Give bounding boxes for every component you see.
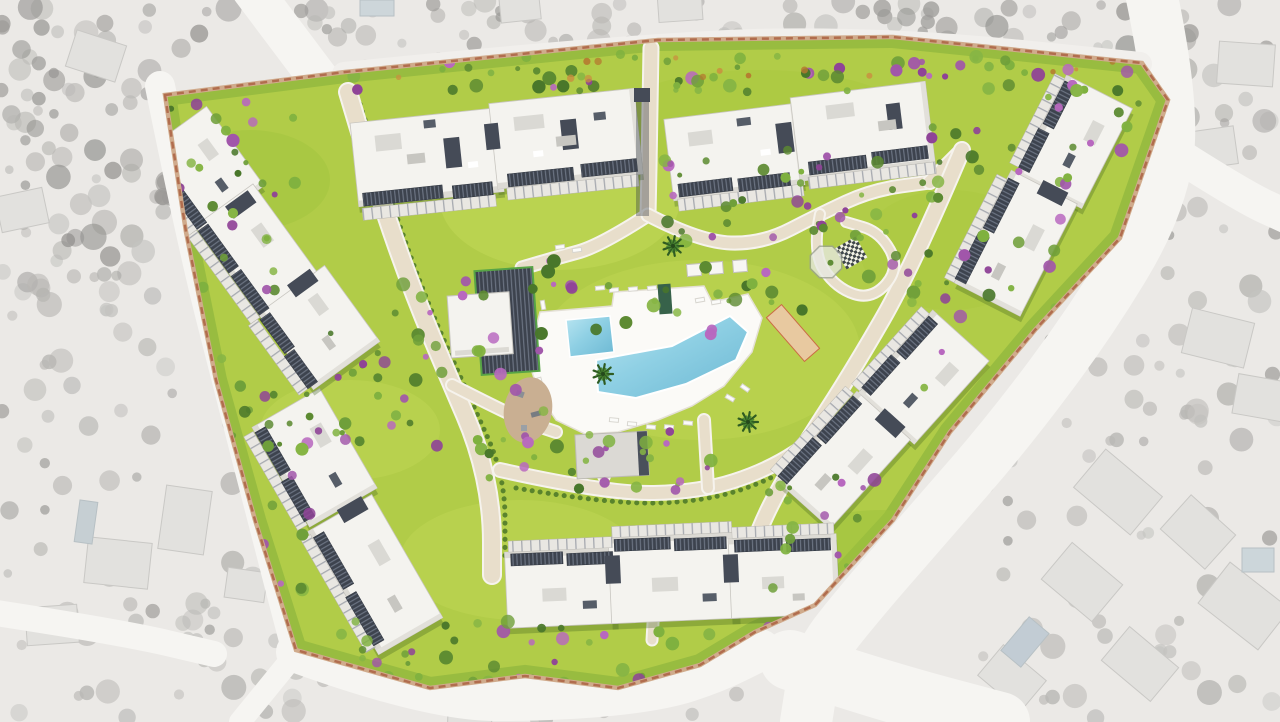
gray-tree-dark: [61, 233, 75, 247]
shrub: [667, 161, 673, 167]
shrub: [359, 655, 366, 662]
sun-lounger: [609, 418, 618, 423]
shrub: [985, 266, 992, 273]
shrub: [783, 146, 792, 155]
shrub: [785, 534, 795, 544]
shrub: [431, 341, 441, 351]
shrub: [919, 59, 925, 65]
shrub: [473, 619, 482, 628]
gray-tree-dark: [143, 3, 156, 16]
shrub: [470, 79, 484, 93]
shrub: [678, 228, 685, 235]
shrub: [939, 349, 945, 355]
shrub: [844, 87, 851, 94]
gray-tree: [1238, 92, 1253, 107]
gray-tree: [40, 360, 50, 370]
gray-tree: [1017, 510, 1036, 529]
gray-tree-dark: [985, 15, 1008, 38]
shrub: [1008, 285, 1014, 291]
shrub: [537, 624, 546, 633]
shrub: [1121, 66, 1133, 78]
gray-tree: [7, 311, 17, 321]
gray-tree: [74, 691, 84, 701]
gray-tree: [1174, 616, 1184, 626]
shrub: [924, 249, 933, 258]
shrub: [400, 394, 409, 403]
shrub: [1043, 260, 1056, 273]
sun-lounger: [572, 247, 581, 252]
shrub: [774, 53, 781, 60]
stair-tower: [443, 137, 462, 169]
shrub: [912, 213, 918, 219]
shrub: [1045, 94, 1052, 101]
shrub: [531, 454, 537, 460]
gray-tree: [1097, 628, 1113, 644]
shrub: [619, 316, 632, 329]
gray-tree: [27, 274, 49, 296]
shrub: [1062, 64, 1073, 75]
shrub: [889, 186, 896, 193]
shrub: [557, 80, 569, 92]
shrub: [797, 179, 804, 186]
shrub: [1112, 85, 1123, 96]
shrub: [870, 208, 882, 220]
gray-tree: [1176, 369, 1185, 378]
gray-tree: [48, 213, 69, 234]
shrub: [416, 291, 427, 302]
palm-trunk: [746, 420, 750, 424]
gray-tree-dark: [27, 120, 44, 137]
shrub: [409, 373, 423, 387]
shrub: [944, 280, 949, 285]
shrub: [439, 66, 445, 72]
gray-tree: [1105, 436, 1115, 446]
gray-tree-dark: [96, 15, 113, 32]
gray-tree: [33, 106, 43, 116]
gray-tree: [92, 174, 101, 183]
shrub: [600, 631, 609, 640]
shrub: [387, 421, 396, 430]
shrub: [669, 192, 677, 200]
shrub: [798, 169, 804, 175]
shrub: [488, 70, 495, 77]
roof-unit: [736, 117, 751, 127]
gray-tree-dark: [1001, 0, 1018, 17]
shrub: [695, 86, 703, 94]
shrub: [1000, 55, 1010, 65]
shrub: [1003, 79, 1015, 91]
shrub: [303, 508, 315, 520]
gray-tree: [1197, 680, 1222, 705]
gray-tree: [1143, 527, 1155, 539]
shrub: [1013, 237, 1025, 249]
shrub: [954, 310, 967, 323]
gray-tree: [6, 115, 21, 130]
shrub: [461, 276, 471, 286]
gray-tree: [17, 437, 32, 452]
shrub: [977, 230, 989, 242]
gray-tree: [99, 281, 120, 302]
shrub: [359, 360, 367, 368]
gray-tree: [132, 472, 141, 481]
gray-tree-dark: [32, 56, 46, 70]
shrub: [270, 391, 278, 399]
shrub: [661, 216, 674, 229]
shrub: [1115, 143, 1129, 157]
shrub: [671, 485, 681, 495]
gray-tree: [4, 569, 13, 578]
gray-tree: [10, 704, 27, 721]
shrub: [1122, 121, 1133, 132]
shrub: [339, 417, 351, 429]
shrub: [955, 60, 965, 70]
shrub: [336, 629, 347, 640]
gray-tree: [144, 287, 161, 304]
sun-lounger: [711, 299, 721, 305]
roof-unit: [375, 133, 403, 152]
gray-tree: [1082, 449, 1096, 463]
gray-tree: [120, 148, 143, 171]
shrub: [349, 369, 357, 377]
shrub: [268, 501, 278, 511]
gray-tree: [1062, 418, 1072, 428]
shrub: [1135, 100, 1141, 106]
shrub: [590, 324, 602, 336]
shrub: [472, 345, 483, 356]
shrub: [533, 67, 540, 74]
shrub: [551, 282, 556, 287]
shrub: [248, 117, 258, 127]
shrub: [263, 440, 274, 451]
roof-pergola: [614, 537, 670, 551]
shrub: [423, 354, 429, 360]
shrub: [819, 224, 828, 233]
shrub: [458, 291, 468, 301]
gray-tree: [1003, 496, 1013, 506]
shrub: [818, 70, 830, 82]
shrub: [464, 64, 472, 72]
accent-shrub: [594, 58, 601, 65]
gray-tree: [131, 240, 155, 264]
gray-tree-dark: [46, 165, 71, 190]
gray-tree: [205, 625, 215, 635]
shrub: [332, 429, 340, 437]
shrub: [532, 80, 545, 93]
gray-tree-dark: [873, 0, 891, 17]
accent-shrub: [1074, 67, 1078, 71]
shrub: [734, 53, 746, 65]
gray-tree: [729, 687, 744, 702]
shrub: [485, 449, 494, 458]
shrub: [262, 285, 271, 294]
gray-tree-dark: [34, 20, 50, 36]
garden-pavilion: [810, 246, 841, 277]
shrub: [265, 420, 274, 429]
gray-tree: [591, 3, 612, 24]
shrub: [269, 267, 277, 275]
gray-tree-dark: [1055, 26, 1068, 39]
shrub: [228, 208, 238, 218]
shrub: [277, 442, 282, 447]
shrub: [780, 543, 791, 554]
gray-tree: [141, 426, 160, 445]
gray-tree: [1125, 390, 1144, 409]
gray-tree: [996, 567, 1010, 581]
roof-unit: [407, 153, 426, 165]
shrub: [735, 64, 741, 70]
shrub: [413, 335, 424, 346]
shrub: [982, 82, 995, 95]
shrub: [942, 73, 948, 79]
shrub: [550, 84, 557, 91]
shrub: [372, 658, 382, 668]
roof-unit: [652, 577, 679, 592]
shrub: [243, 160, 248, 165]
shrub: [743, 88, 752, 97]
shrub: [315, 427, 322, 434]
playground-equipment: [521, 425, 527, 431]
gray-tree: [156, 358, 175, 377]
gray-tree: [1155, 624, 1176, 645]
shade-cabana: [733, 259, 748, 272]
shrub: [289, 177, 301, 189]
gray-tree: [51, 25, 64, 38]
shrub: [328, 331, 334, 337]
shrub: [769, 233, 777, 241]
shrub: [519, 462, 529, 472]
gray-tree: [114, 404, 128, 418]
palm-trunk: [671, 244, 675, 248]
shrub: [676, 477, 684, 485]
shrub: [664, 58, 672, 66]
accent-shrub: [746, 73, 752, 79]
shrub: [937, 159, 943, 165]
shrub: [296, 443, 309, 456]
gray-tree: [1198, 460, 1213, 475]
sun-lounger: [695, 297, 705, 303]
shrub: [713, 289, 722, 298]
shrub: [838, 479, 846, 487]
gray-tree: [138, 338, 156, 356]
shrub: [933, 193, 943, 203]
shade-cabana: [687, 263, 702, 276]
shrub: [1031, 68, 1045, 82]
accent-shrub: [801, 67, 808, 74]
shrub: [242, 98, 251, 107]
gray-tree: [202, 7, 212, 17]
gray-tree: [97, 267, 112, 282]
shrub: [195, 164, 203, 172]
shrub: [375, 350, 381, 356]
shrub: [940, 293, 950, 303]
shrub: [510, 384, 522, 396]
shrub: [583, 458, 589, 464]
shrub: [907, 298, 917, 308]
roof-unit: [760, 149, 771, 156]
gray-tree: [224, 628, 243, 647]
shrub: [539, 406, 549, 416]
shrub: [442, 622, 450, 630]
gray-tree: [26, 152, 45, 171]
gray-tree: [167, 389, 177, 399]
gray-tree: [42, 410, 55, 423]
shrub: [191, 99, 203, 111]
gray-tree: [1136, 334, 1150, 348]
sun-lounger: [627, 422, 636, 427]
shrub: [646, 454, 654, 462]
shrub: [221, 126, 231, 136]
shrub: [306, 413, 314, 421]
gray-tree: [1182, 661, 1201, 680]
roof-unit: [556, 135, 577, 147]
roof-pergola: [674, 537, 726, 551]
shrub: [566, 282, 578, 294]
gray-tree: [686, 708, 699, 721]
shrub: [1048, 245, 1060, 257]
shrub: [666, 637, 680, 651]
shrub: [407, 420, 414, 427]
shrub: [359, 646, 367, 654]
shrub: [431, 440, 443, 452]
shrub: [352, 84, 363, 95]
gray-tree: [52, 147, 73, 168]
gray-tree: [1124, 355, 1145, 376]
gray-tree: [1188, 291, 1207, 310]
gray-tree: [123, 597, 137, 611]
gray-tree: [856, 5, 870, 19]
shrub: [528, 284, 538, 294]
roof-unit: [533, 150, 544, 157]
gray-tree: [1039, 695, 1049, 705]
shrub: [666, 427, 675, 436]
shrub: [857, 234, 864, 241]
gray-tree: [79, 416, 99, 436]
shrub: [288, 471, 297, 480]
gray-tree: [328, 27, 347, 46]
shrub: [448, 85, 458, 95]
shrub: [239, 406, 251, 418]
shrub: [918, 68, 927, 77]
roof-unit: [793, 593, 805, 601]
shrub: [862, 270, 876, 284]
gray-tree: [1187, 404, 1208, 425]
accent-shrub: [396, 75, 401, 80]
gray-tree: [1252, 109, 1276, 133]
roof-unit: [583, 600, 597, 609]
shrub: [929, 123, 937, 131]
gray-tree: [155, 204, 171, 220]
shrub: [211, 113, 222, 124]
shrub: [958, 249, 970, 261]
shrub: [703, 157, 710, 164]
roof-unit: [468, 161, 479, 168]
shrub: [391, 410, 401, 420]
shrub: [586, 639, 593, 646]
shrub: [1114, 107, 1124, 117]
accent-shrub: [717, 68, 723, 74]
shrub: [786, 521, 799, 534]
shrub: [860, 485, 866, 491]
shrub: [340, 434, 351, 445]
shrub: [723, 79, 737, 93]
gray-tree: [1143, 402, 1157, 416]
roof-unit: [423, 119, 436, 128]
shrub: [529, 639, 535, 645]
shrub: [405, 661, 410, 666]
shrub: [616, 663, 630, 677]
gray-tree: [1248, 290, 1272, 314]
shrub: [758, 164, 770, 176]
shrub: [605, 282, 612, 289]
shrub: [379, 356, 391, 368]
shrub: [427, 310, 433, 316]
gray-tree: [307, 15, 322, 30]
shrub: [355, 436, 365, 446]
gray-tree: [221, 675, 246, 700]
shrub: [973, 127, 980, 134]
shrub: [439, 651, 453, 665]
shrub: [551, 659, 557, 665]
shrub: [220, 254, 228, 262]
gray-tree-dark: [32, 92, 46, 106]
shrub: [599, 477, 609, 487]
shrub: [486, 474, 493, 481]
shrub: [871, 156, 884, 169]
shrub: [704, 454, 718, 468]
gray-tree: [208, 607, 221, 620]
gray-tree: [21, 180, 31, 190]
site-plan-aerial-render: [0, 0, 1280, 722]
shrub: [488, 332, 499, 343]
neighbor-house: [499, 0, 541, 23]
gray-tree: [1230, 428, 1254, 452]
shrub: [373, 373, 382, 382]
shrub: [969, 50, 983, 64]
shrub: [632, 55, 638, 61]
shrub: [436, 367, 447, 378]
shrub: [647, 299, 661, 313]
shrub: [207, 201, 218, 212]
shrub: [797, 304, 808, 315]
shrub: [926, 73, 932, 79]
shrub: [747, 278, 758, 289]
shrub: [1015, 168, 1022, 175]
shrub: [920, 384, 928, 392]
shrub: [1069, 144, 1076, 151]
shrub: [640, 449, 646, 455]
gray-tree-dark: [12, 40, 31, 59]
shrub: [478, 290, 488, 300]
gray-tree: [175, 616, 190, 631]
gap-stair-tower: [634, 88, 650, 102]
shrub: [663, 440, 670, 447]
shrub: [550, 439, 564, 453]
shrub: [1063, 173, 1072, 182]
shrub: [631, 482, 642, 493]
gray-tree: [20, 135, 30, 145]
gray-tree: [1096, 0, 1106, 10]
shrub: [352, 618, 360, 626]
sun-lounger: [646, 425, 655, 430]
shrub: [983, 289, 996, 302]
shrub: [1070, 84, 1083, 97]
gray-tree: [101, 305, 112, 316]
gray-tree-dark: [100, 246, 120, 266]
shrub: [361, 635, 372, 646]
shrub: [603, 435, 616, 448]
gray-tree-dark: [923, 1, 939, 17]
shrub: [926, 132, 937, 143]
